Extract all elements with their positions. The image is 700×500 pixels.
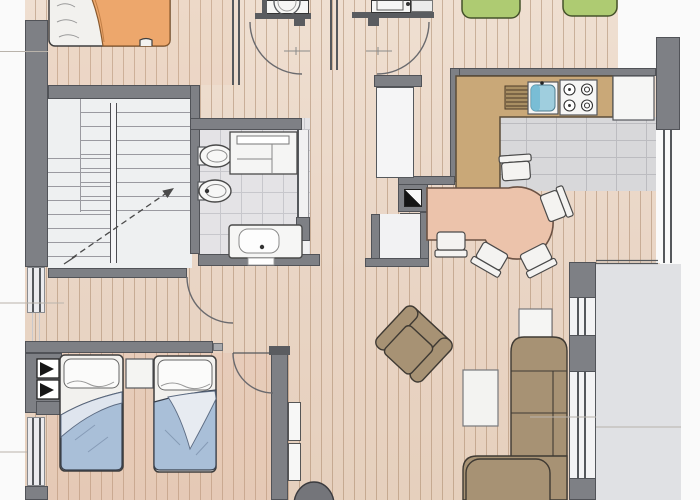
nightstand xyxy=(126,359,153,388)
dining-chair-1 xyxy=(499,154,533,181)
green-cushion-1 xyxy=(462,0,520,18)
stair-start-tick xyxy=(64,256,76,264)
green-cushion-2 xyxy=(563,0,617,16)
arc-tick-2 xyxy=(366,47,392,55)
bed-2-pillow xyxy=(158,360,212,390)
coffee-table xyxy=(463,370,498,426)
boiler-dot xyxy=(406,2,410,6)
bathtub-drain xyxy=(260,245,264,249)
furniture-layer xyxy=(0,0,700,500)
boiler-inner xyxy=(377,0,403,10)
kitchen-sink-shade xyxy=(531,85,540,111)
stair-arrow-head xyxy=(162,188,174,198)
dining-chair-5 xyxy=(435,232,467,257)
fridge xyxy=(613,76,654,120)
bed-top-left-notch xyxy=(140,39,152,47)
armchair xyxy=(373,303,455,385)
floor-plan-canvas xyxy=(0,0,700,500)
bath-step xyxy=(248,258,274,265)
arc-tick-1 xyxy=(284,47,310,55)
washing-machine-drum-inner xyxy=(278,0,296,11)
balcony-slider-window xyxy=(596,261,658,264)
pouf xyxy=(294,482,334,500)
stair-arrow-dashed xyxy=(72,192,168,258)
bidet-faucet-dot xyxy=(205,189,209,193)
door-arc-closet-right xyxy=(377,22,429,74)
door-arc-closet-left xyxy=(250,22,302,74)
faucet-dot xyxy=(540,81,544,85)
door-arc-bedroom xyxy=(233,353,273,393)
sofa-bottom-cushion xyxy=(466,459,550,500)
bathtub-basin xyxy=(239,229,279,253)
door-arc-hall xyxy=(187,277,233,323)
vanity-shelf xyxy=(237,136,289,144)
